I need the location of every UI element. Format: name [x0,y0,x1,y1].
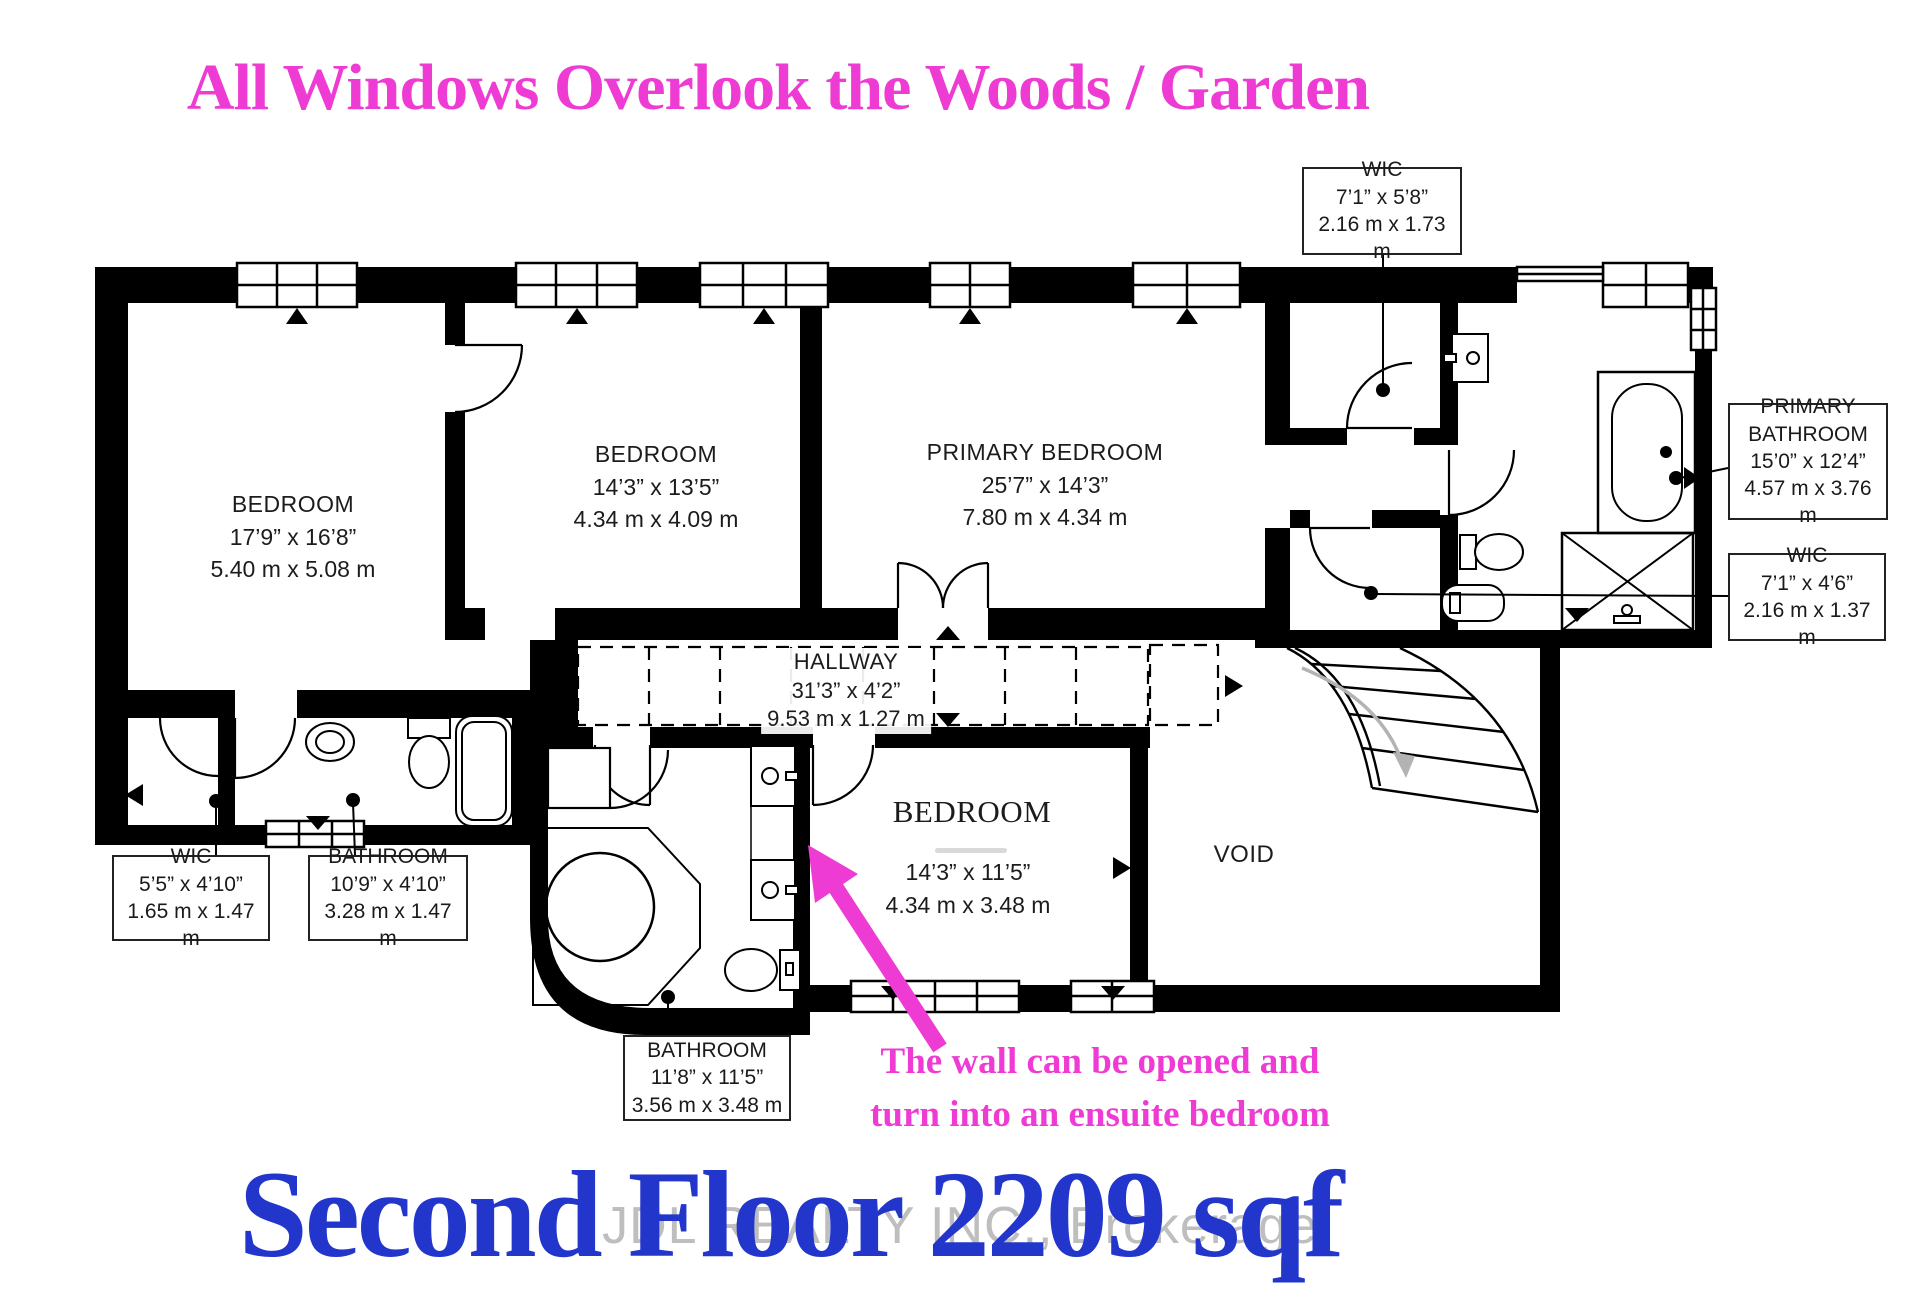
door-primary-bath [1449,450,1514,515]
toilet-strip-bathroom [408,718,450,788]
toilet-bottom-bathroom [725,949,800,991]
bathtub-primary [1598,372,1695,533]
callout-primary-bathroom: PRIMARY BATHROOM 15’0” x 12’4” 4.57 m x … [1728,403,1888,520]
window-sill-segment [1517,267,1603,281]
toilet-primary-bath [1460,534,1523,570]
page-title: All Windows Overlook the Woods / Garden [0,50,1556,126]
door-wic-lower [1310,528,1370,588]
door-bedroom4 [813,745,873,805]
room-label-primary-bedroom: PRIMARY BEDROOM 25’7” x 14’3” 7.80 m x 4… [927,436,1164,534]
window-top-4 [930,263,1010,307]
callout-wic-top: WIC 7’1” x 5’8” 2.16 m x 1.73 m [1302,167,1462,255]
erased-text-artifact [935,848,1007,853]
window-top-2 [516,263,637,307]
bidet-primary-bath [1442,585,1504,621]
stairs-direction-arrow [1302,668,1415,778]
room-label-hallway: HALLWAY 31’3” x 4’2” 9.53 m x 1.27 m [761,648,931,734]
floor-title: Second Floor 2209 sqf [0,1150,1580,1280]
sink-strip-bathroom [306,723,354,761]
door-bathroom-strip [235,718,295,778]
callout-wic-right: WIC 7’1” x 4’6” 2.16 m x 1.37 m [1728,553,1886,641]
room-label-bedroom-4-dims: 14’3” x 11’5” 4.34 m x 3.48 m [886,856,1051,921]
window-top-3 [700,263,828,307]
callout-wic-left: WIC 5’5” x 4’10” 1.65 m x 1.47 m [112,855,270,941]
room-label-bedroom-4-name: BEDROOM [893,790,1052,834]
closet-dashed [1150,645,1218,725]
floorplan-page: All Windows Overlook the Woods / Garden … [0,0,1920,1311]
wall-annotation: The wall can be opened and turn into an … [845,1036,1355,1141]
room-label-bedroom-left: BEDROOM 17’9” x 16’8” 5.40 m x 5.08 m [211,488,376,586]
stairs-group [1287,648,1538,812]
window-right-wall [1691,288,1716,350]
window-top-1 [237,263,357,307]
callout-bathroom-strip: BATHROOM 10’9” x 4’10” 3.28 m x 1.47 m [308,855,468,941]
door-wic-left-shower [160,718,218,776]
callout-bathroom-bottom: BATHROOM 11’8” x 11’5” 3.56 m x 3.48 m [623,1035,791,1121]
door-double-primary [898,563,988,608]
window-top-6 [1603,263,1688,307]
window-top-5 [1133,263,1240,307]
window-bottom-double [851,981,1019,1012]
room-label-bedroom-2: BEDROOM 14’3” x 13’5” 4.34 m x 4.09 m [574,438,739,536]
room-label-void: VOID [1214,838,1275,872]
bathtub-strip [456,716,512,826]
door-bedroom2 [455,345,522,412]
vanity-double [751,746,798,920]
